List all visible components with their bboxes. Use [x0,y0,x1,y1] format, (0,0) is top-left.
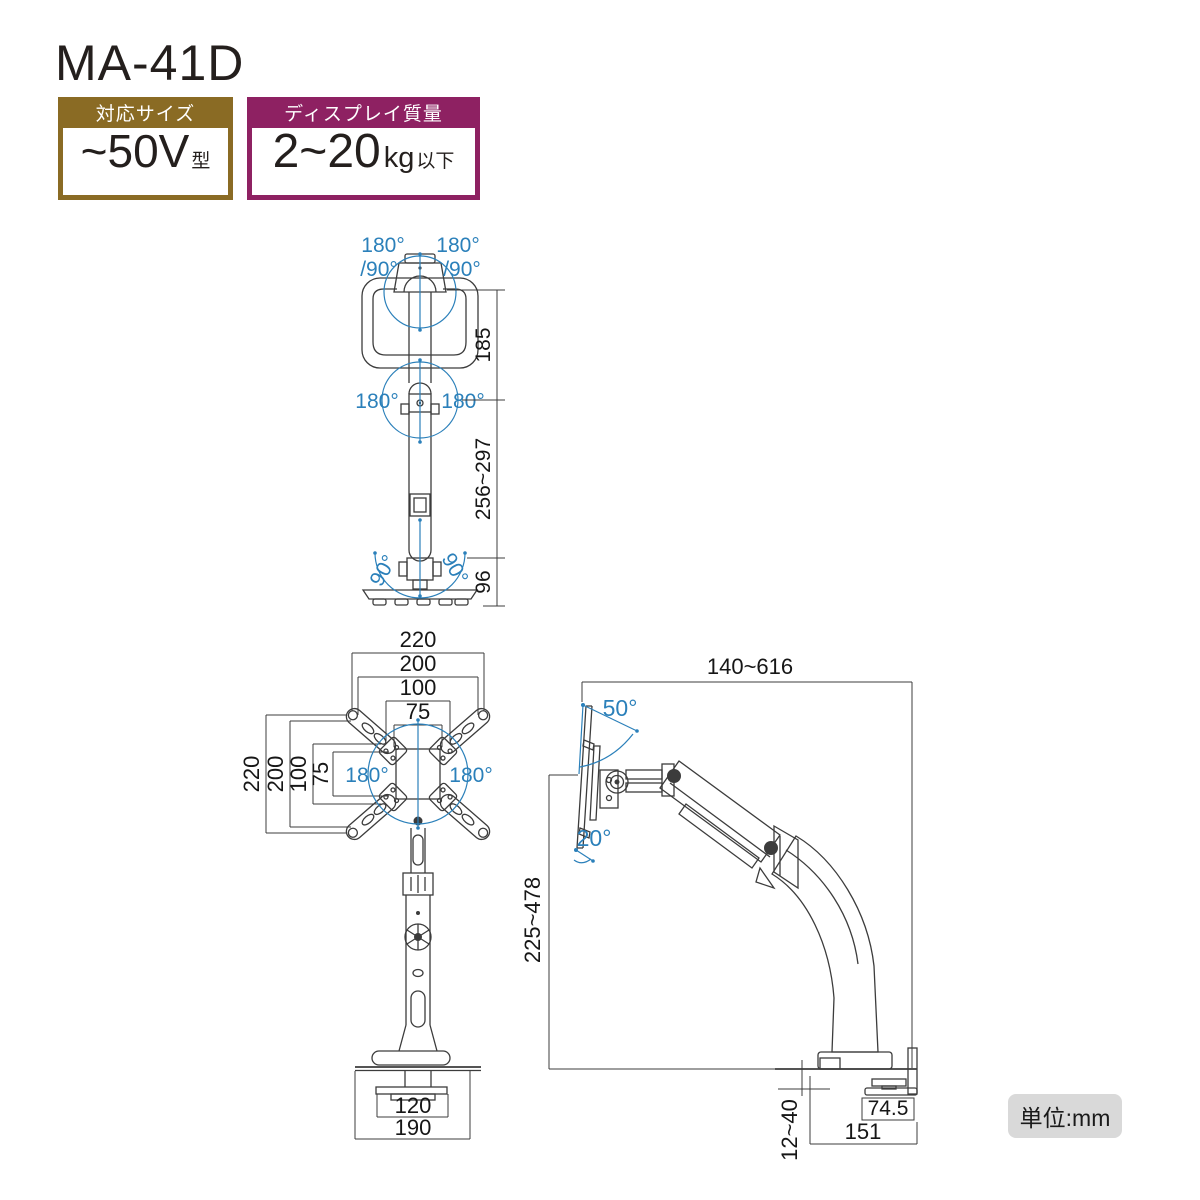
vesa-width-200: 200 [400,651,437,676]
size-badge-body: ~50V 型 [63,128,228,195]
size-suffix: 型 [191,152,210,171]
vesa-height-220: 220 [243,756,264,793]
dim-base-outer: 190 [395,1115,432,1140]
product-model-title: MA-41D [55,34,244,92]
swivel-angle-right: 180° [436,234,479,257]
dim-desk-thickness: 12~40 [777,1099,802,1161]
vesa-view-diagram: 220 200 100 75 220 200 100 75 [243,625,523,1185]
swivel-angle-left: 180° [361,234,404,257]
dim-base-height: 96 [472,570,495,593]
dim-height: 225~478 [520,877,545,963]
compatible-size-badge: 対応サイズ ~50V 型 [58,97,233,200]
vesa-height-200: 200 [263,756,288,793]
dim-base-depth: 151 [845,1119,882,1144]
vesa-width-220: 220 [400,627,437,652]
tilt-down-angle: 20° [577,825,612,851]
dim-reach: 140~616 [707,654,793,679]
pivot-angle-left: /90° [360,258,398,281]
size-value: ~50V [81,128,190,174]
base-swivel-right: 90° [437,549,473,588]
front-view-diagram: 180° 180° /90° /90° 180° 180° 90° 90° 18… [325,228,530,628]
weight-badge-header: ディスプレイ質量 [247,97,480,128]
unit-label: 単位:mm [1020,1099,1111,1133]
size-badge-header: 対応サイズ [58,97,233,128]
vesa-pole-base [355,828,481,1100]
tilt-up-angle: 50° [603,695,638,721]
base-swivel-left: 90° [365,551,401,590]
unit-badge: 単位:mm [1008,1094,1122,1138]
vesa-height-75: 75 [308,762,333,786]
vesa-rotate-right: 180° [449,764,492,787]
display-weight-badge: ディスプレイ質量 2~20 kg 以下 [247,97,480,200]
dim-pole-height: 256~297 [472,438,495,520]
reach-dim-lines [582,682,912,1068]
pivot-angle-right: /90° [443,258,481,281]
mid-rotate-right: 180° [441,390,484,413]
weight-badge-body: 2~20 kg 以下 [252,128,475,195]
weight-unit: kg [384,144,415,173]
side-arm [606,761,878,1052]
height-dim-lines [549,775,775,1069]
side-clamp [775,1048,917,1095]
rotation-marks [373,252,467,598]
dim-clamp-pad: 74.5 [868,1097,909,1120]
weight-value: 2~20 [273,128,381,176]
spec-sheet: MA-41D 対応サイズ ~50V 型 ディスプレイ質量 2~20 kg 以下 [0,0,1200,1200]
mid-rotate-left: 180° [355,390,398,413]
vesa-width-100: 100 [400,675,437,700]
side-view-diagram: 140~616 225~478 50° 20° [520,648,960,1183]
weight-suffix: 以下 [416,152,454,171]
dim-head-height: 185 [472,327,495,362]
vesa-rotate-left: 180° [345,764,388,787]
